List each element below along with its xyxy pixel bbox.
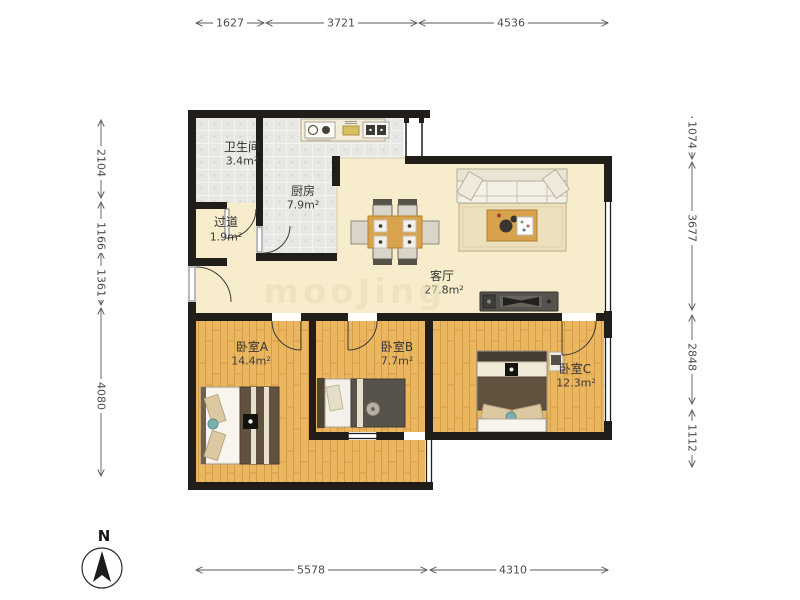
bedroom-a-floor-extension	[309, 440, 433, 482]
room-label-bathroom: 卫生间	[224, 141, 260, 153]
wall-corridor-2	[301, 313, 348, 321]
sink-icon	[343, 126, 359, 135]
stove-burner-icon	[322, 126, 330, 134]
wall-bathroom-bottom	[196, 202, 227, 209]
dim-right-2: 3677	[687, 211, 698, 245]
wall-top	[188, 110, 430, 118]
dim-left-1: 2104	[96, 146, 107, 180]
room-area-kitchen: 7.9m²	[287, 200, 320, 211]
dim-top-2: 3721	[324, 18, 358, 29]
wall-bedroom-bc-divider	[425, 313, 433, 440]
room-label-bedroom-c: 卧室C	[559, 363, 591, 375]
wall-bedroom-b-bottom-2	[377, 432, 404, 440]
bed-b	[317, 378, 405, 428]
room-label-hallway: 过道	[214, 216, 238, 228]
wall-corridor-1	[196, 313, 272, 321]
dining-chair	[398, 247, 417, 265]
dining-chair	[373, 247, 392, 265]
window-bedroom-c-right	[606, 338, 611, 421]
dim-right-3: 2848	[687, 340, 698, 374]
wall-bedroom-b-bottom-1	[309, 432, 348, 440]
wall-left-lower	[188, 302, 196, 490]
round-cushion	[208, 419, 218, 429]
dim-left-4: 4080	[96, 379, 107, 413]
window-living-right	[606, 202, 611, 311]
dresser	[477, 351, 547, 362]
room-label-bedroom-b: 卧室B	[381, 341, 413, 353]
wall-kitchen-left	[256, 118, 263, 226]
compass	[82, 548, 122, 588]
dining-chair	[398, 199, 417, 217]
kitchen-counter	[301, 119, 389, 141]
tray-icon	[517, 217, 533, 235]
dim-bottom-1: 5578	[294, 565, 328, 576]
dining-chair	[373, 199, 392, 217]
watermark: mooJing	[264, 272, 447, 312]
dim-right-1: 1074	[687, 118, 698, 152]
room-area-hallway: 1.9m²	[210, 232, 243, 243]
window-kitchen-right	[404, 118, 426, 156]
room-label-kitchen: 厨房	[291, 185, 315, 197]
room-area-bedroom-b: 7.7m²	[381, 356, 414, 367]
wall-corridor-3	[377, 313, 562, 321]
wall-kitchen-stub	[332, 156, 340, 186]
wall-hallway-bottom	[188, 258, 227, 266]
dim-right-4: 1112	[687, 421, 698, 455]
window-bedroom-b-bottom	[348, 432, 377, 440]
sofa	[457, 169, 569, 203]
dim-top-3: 4536	[494, 18, 528, 29]
compass-north-label: N	[98, 527, 111, 545]
wall-bedroom-ab-divider	[309, 313, 316, 432]
dim-bottom-2: 4310	[496, 565, 530, 576]
coffee-table	[487, 210, 537, 241]
wall-left-upper	[188, 110, 196, 266]
headboard	[317, 378, 325, 428]
dim-left-2: 1166	[96, 219, 107, 253]
dining-chair	[351, 221, 368, 244]
dim-left-3: 1361	[96, 266, 107, 300]
room-area-bathroom: 3.4m²	[226, 156, 259, 167]
wall-kitchen-bottom	[263, 253, 337, 261]
wall-right-mid	[604, 311, 612, 338]
dim-top-1: 1627	[213, 18, 247, 29]
wall-living-top	[405, 156, 612, 164]
bed-a	[201, 387, 279, 464]
room-label-bedroom-a: 卧室A	[236, 341, 268, 353]
dining-chair	[422, 221, 439, 244]
wall-right-upper	[604, 156, 612, 202]
wall-bedroom-c-bottom	[425, 432, 612, 440]
tv-stand	[480, 292, 558, 311]
wall-bottom	[188, 482, 433, 490]
floorplan: 卫生间 3.4m² 厨房 7.9m² 过道 1.9m² 客厅 27.8m² 卧室…	[0, 0, 800, 600]
room-area-bedroom-a: 14.4m²	[231, 356, 271, 367]
window-extension-right	[425, 440, 433, 482]
room-area-bedroom-c: 12.3m²	[556, 378, 596, 389]
teapot-icon	[500, 220, 513, 233]
